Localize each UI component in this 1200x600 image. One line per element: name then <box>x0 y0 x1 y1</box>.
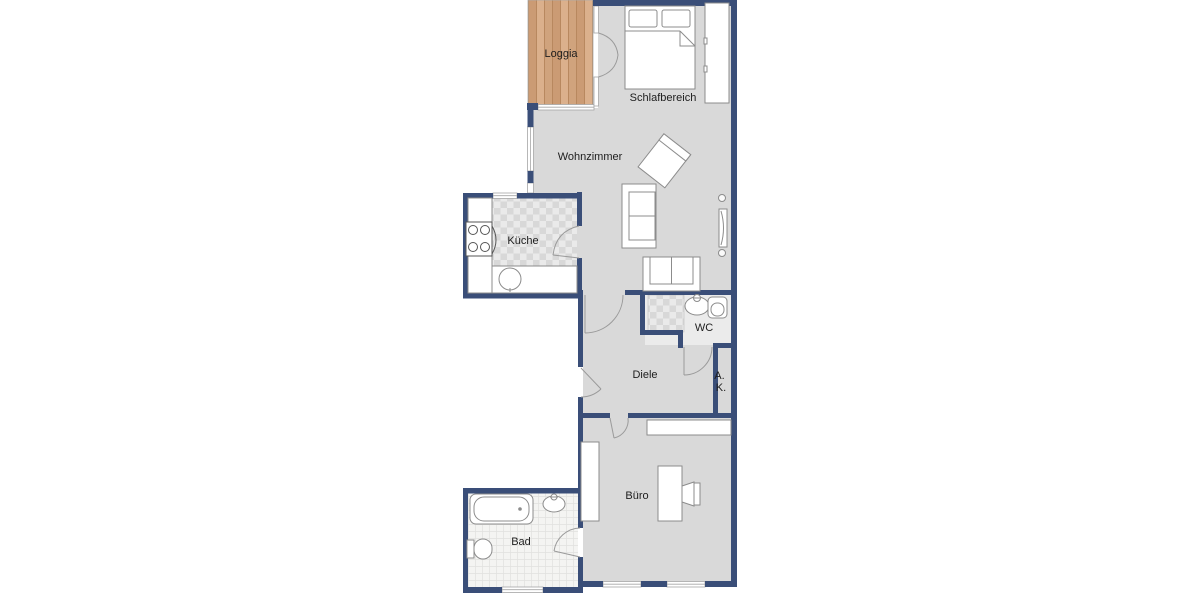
wall-segment <box>640 290 645 335</box>
desk <box>658 466 682 521</box>
loggia-side-glazing-top <box>594 6 599 33</box>
loggia-side-glazing-bottom <box>594 77 599 106</box>
buero-shelf-top <box>647 420 731 435</box>
sofa-small <box>622 184 656 248</box>
wall-segment <box>528 171 534 183</box>
bed <box>625 6 695 89</box>
wall-segment <box>705 581 737 587</box>
bad-toilet-tank <box>467 540 474 558</box>
wall-segment <box>463 293 583 299</box>
room-label-buero: Büro <box>625 490 648 502</box>
floor-buero <box>583 418 731 582</box>
bed-pillow-right <box>662 10 690 27</box>
wall-segment <box>577 258 582 295</box>
wall-segment <box>463 488 583 494</box>
wardrobe-handle-1 <box>704 38 707 44</box>
wall-segment <box>578 290 583 367</box>
wardrobe-body <box>705 3 729 103</box>
bathtub-drain <box>518 507 522 511</box>
room-label-loggia: Loggia <box>544 48 578 60</box>
room-label-schlafbereich: Schlafbereich <box>630 92 697 104</box>
wall-marker-bottom <box>719 250 726 257</box>
wall-segment <box>543 587 583 593</box>
room-label-abstellkammer: A. K. <box>714 370 727 394</box>
wall-segment <box>578 581 603 587</box>
wardrobe <box>704 3 729 103</box>
wall-segment <box>517 193 582 199</box>
buero-shelf-left <box>581 442 599 521</box>
room-label-kueche: Küche <box>507 235 538 247</box>
wall-segment <box>463 587 502 593</box>
room-label-wohnzimmer: Wohnzimmer <box>558 151 623 163</box>
wall-segment <box>678 330 683 348</box>
wc-shower-tiles <box>648 295 684 332</box>
wall-segment <box>578 413 610 418</box>
bad-toilet-bowl <box>474 539 492 559</box>
room-label-bad: Bad <box>511 536 531 548</box>
wall-segment <box>640 330 683 335</box>
bed-pillow-left <box>629 10 657 27</box>
room-label-diele: Diele <box>632 369 657 381</box>
wohnzimmer-window-2 <box>528 183 534 193</box>
wall-marker-top <box>719 195 726 202</box>
wall-segment <box>528 106 534 127</box>
wall-segment <box>641 581 667 587</box>
wardrobe-handle-2 <box>704 66 707 72</box>
desk-chair-back <box>694 483 700 505</box>
wall-segment <box>628 413 737 418</box>
room-label-wc: WC <box>695 322 713 334</box>
room-label-abstellkammer-line2: K. <box>716 382 726 394</box>
room-label-abstellkammer-line1: A. <box>714 370 724 382</box>
wc-toilet-bowl <box>711 303 724 316</box>
desk-chair-seat <box>682 482 694 506</box>
wall-segment <box>577 192 582 226</box>
sofa-large <box>643 257 700 291</box>
floorplan-canvas: Loggia Schlafbereich Wohnzimmer Küche WC… <box>0 0 1200 600</box>
floorplan-svg: Loggia Schlafbereich Wohnzimmer Küche WC… <box>0 0 1200 600</box>
